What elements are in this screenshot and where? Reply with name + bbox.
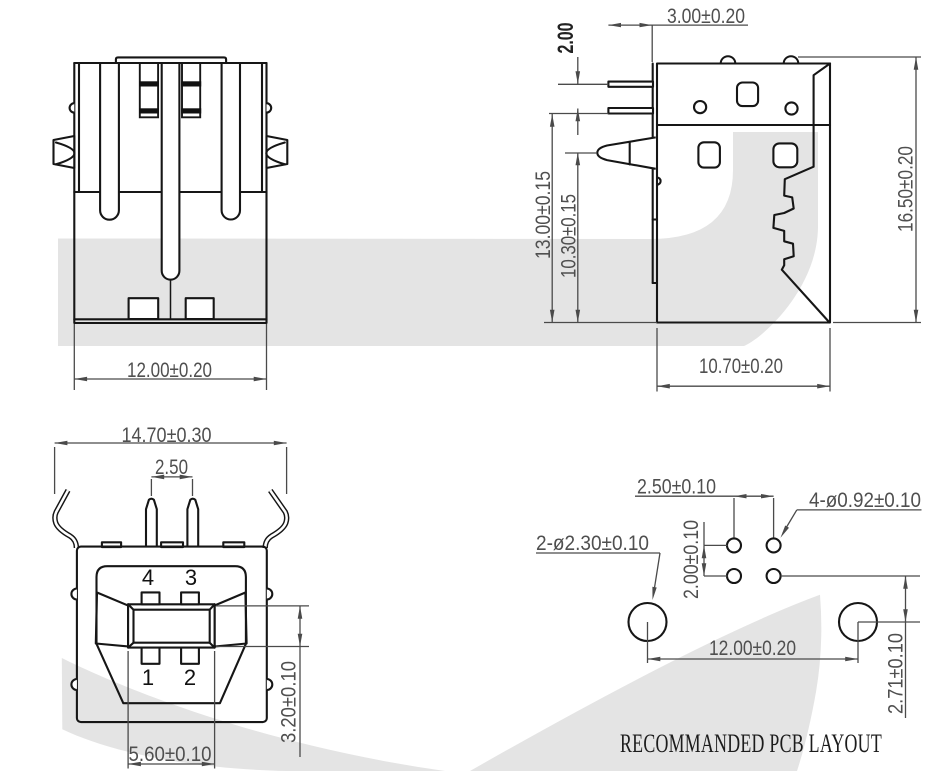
svg-text:RECOMMANDED PCB LAYOUT: RECOMMANDED PCB LAYOUT bbox=[620, 729, 882, 758]
svg-text:10.30±0.15: 10.30±0.15 bbox=[558, 194, 581, 278]
svg-text:2.00: 2.00 bbox=[553, 23, 578, 54]
svg-text:2.50±0.10: 2.50±0.10 bbox=[637, 476, 716, 499]
svg-text:4: 4 bbox=[142, 565, 154, 590]
svg-text:1: 1 bbox=[142, 665, 154, 690]
svg-text:14.70±0.30: 14.70±0.30 bbox=[122, 424, 212, 447]
svg-text:2.50: 2.50 bbox=[155, 456, 188, 479]
svg-text:10.70±0.20: 10.70±0.20 bbox=[699, 355, 783, 378]
svg-text:16.50±0.20: 16.50±0.20 bbox=[895, 146, 918, 232]
svg-text:3.00±0.20: 3.00±0.20 bbox=[667, 5, 745, 28]
svg-text:13.00±0.15: 13.00±0.15 bbox=[532, 171, 555, 259]
svg-text:2-ø2.30±0.10: 2-ø2.30±0.10 bbox=[536, 532, 649, 555]
svg-text:12.00±0.20: 12.00±0.20 bbox=[709, 637, 796, 660]
svg-text:2.00±0.10: 2.00±0.10 bbox=[680, 520, 703, 599]
svg-text:2: 2 bbox=[184, 665, 196, 690]
svg-text:5.60±0.10: 5.60±0.10 bbox=[129, 743, 212, 766]
svg-text:12.00±0.20: 12.00±0.20 bbox=[127, 359, 212, 382]
svg-text:4-ø0.92±0.10: 4-ø0.92±0.10 bbox=[809, 489, 921, 512]
svg-text:3.20±0.10: 3.20±0.10 bbox=[278, 661, 301, 743]
svg-text:3: 3 bbox=[185, 565, 197, 590]
svg-text:2.71±0.10: 2.71±0.10 bbox=[885, 633, 908, 714]
